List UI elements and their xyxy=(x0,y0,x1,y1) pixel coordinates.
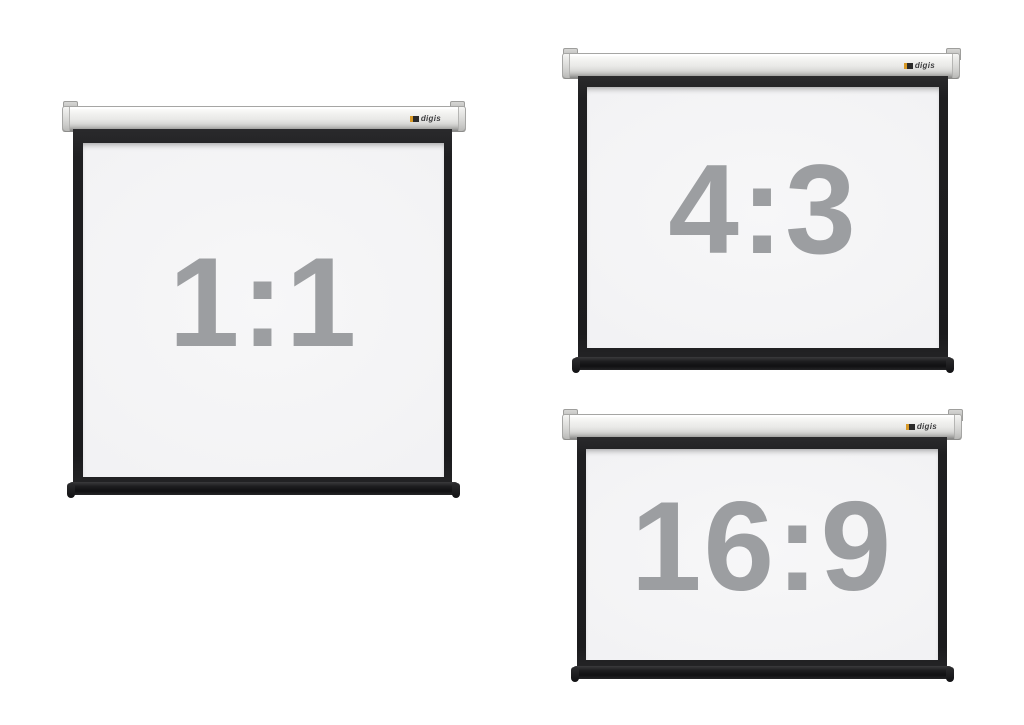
screen-black-frame: 1:1 xyxy=(73,129,452,484)
ratio-label: 1:1 xyxy=(169,239,359,366)
projection-screen-1-1: digis 1:1 xyxy=(62,101,466,501)
screen-weight-bar xyxy=(573,666,952,679)
brand-logo-icon xyxy=(906,424,915,430)
brand-logo-text: digis xyxy=(917,423,937,431)
projection-screen-16-9: digis 16:9 xyxy=(562,409,962,690)
product-image-canvas: digis 1:1 digis 4:3 xyxy=(0,0,1024,725)
projection-surface: 16:9 xyxy=(586,449,938,660)
brand-logo-text: digis xyxy=(421,115,441,123)
projection-surface: 4:3 xyxy=(587,87,939,348)
brand-logo: digis xyxy=(906,423,937,431)
brand-logo-icon xyxy=(410,116,419,122)
brand-logo: digis xyxy=(410,115,441,123)
screen-weight-bar xyxy=(574,357,952,370)
ratio-label: 4:3 xyxy=(668,146,858,273)
brand-logo: digis xyxy=(904,62,935,70)
screen-weight-bar xyxy=(69,482,458,495)
projection-surface: 1:1 xyxy=(83,143,444,477)
brand-logo-text: digis xyxy=(915,62,935,70)
brand-logo-icon xyxy=(904,63,913,69)
projection-screen-4-3: digis 4:3 xyxy=(562,48,962,377)
screen-black-frame: 16:9 xyxy=(577,437,947,666)
screen-black-frame: 4:3 xyxy=(578,76,948,357)
ratio-label: 16:9 xyxy=(631,483,893,610)
